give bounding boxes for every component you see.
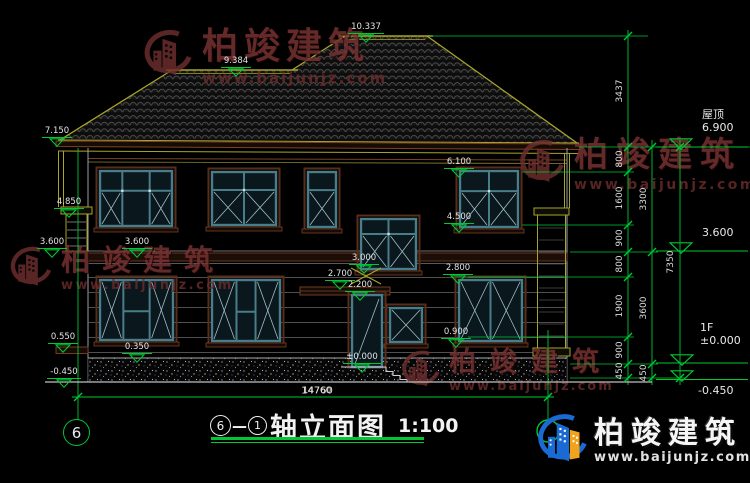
level-marker-triangle	[670, 367, 694, 386]
brand-logo-url: www.baijunjz.com	[594, 450, 750, 465]
level-marker-triangle	[669, 135, 693, 154]
brand-logo: 柏竣建筑 www.baijunjz.com	[534, 414, 750, 470]
cad-elevation-screenshot: 柏竣建筑 www.baijunjz.com 柏竣建筑 www.baijunjz.…	[0, 0, 750, 483]
title-axis-to: 1	[248, 416, 267, 435]
brand-logo-name: 柏竣建筑	[594, 419, 750, 449]
level-marker-label: 3.600	[702, 227, 734, 240]
title-underline	[211, 437, 424, 440]
title-underline-thin	[211, 442, 424, 443]
brand-logo-icon	[534, 414, 590, 470]
title-axis-from: 6	[210, 415, 231, 436]
level-marker-label: 1F±0.000	[700, 322, 741, 347]
title-scale: 1:100	[398, 415, 458, 437]
axis-bubble-6: 6	[63, 419, 90, 446]
level-marker-label: 屋顶6.900	[702, 109, 734, 134]
title-dash: —	[232, 417, 247, 435]
level-marker-triangle	[669, 239, 693, 258]
level-marker-label: -0.450	[698, 385, 733, 398]
